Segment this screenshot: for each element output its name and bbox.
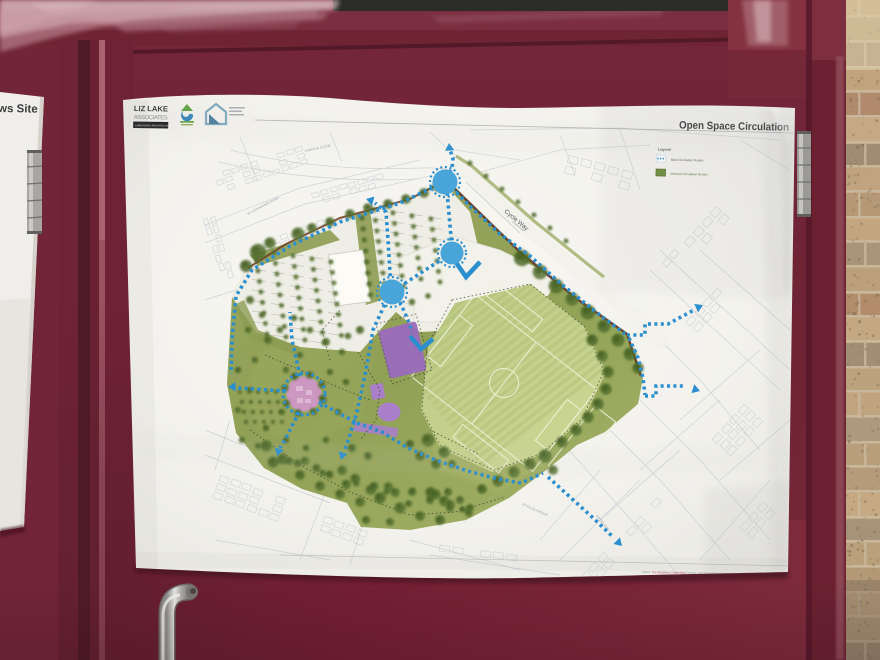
svg-text:ws Site: ws Site	[0, 103, 38, 116]
